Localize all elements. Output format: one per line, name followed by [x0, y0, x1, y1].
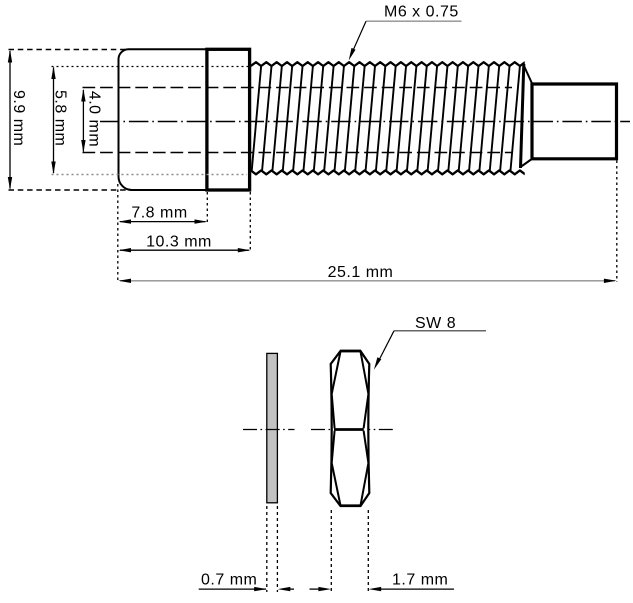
- svg-text:25.1 mm: 25.1 mm: [328, 264, 394, 281]
- svg-text:9.9 mm: 9.9 mm: [10, 90, 27, 146]
- svg-text:10.3 mm: 10.3 mm: [146, 234, 212, 251]
- svg-text:M6 x 0.75: M6 x 0.75: [384, 4, 459, 21]
- svg-text:4.0 mm: 4.0 mm: [86, 91, 103, 147]
- svg-text:0.7 mm: 0.7 mm: [201, 572, 257, 589]
- svg-text:SW 8: SW 8: [415, 315, 456, 332]
- svg-text:1.7 mm: 1.7 mm: [392, 572, 448, 589]
- svg-text:7.8 mm: 7.8 mm: [131, 205, 187, 222]
- svg-text:5.8 mm: 5.8 mm: [52, 90, 69, 146]
